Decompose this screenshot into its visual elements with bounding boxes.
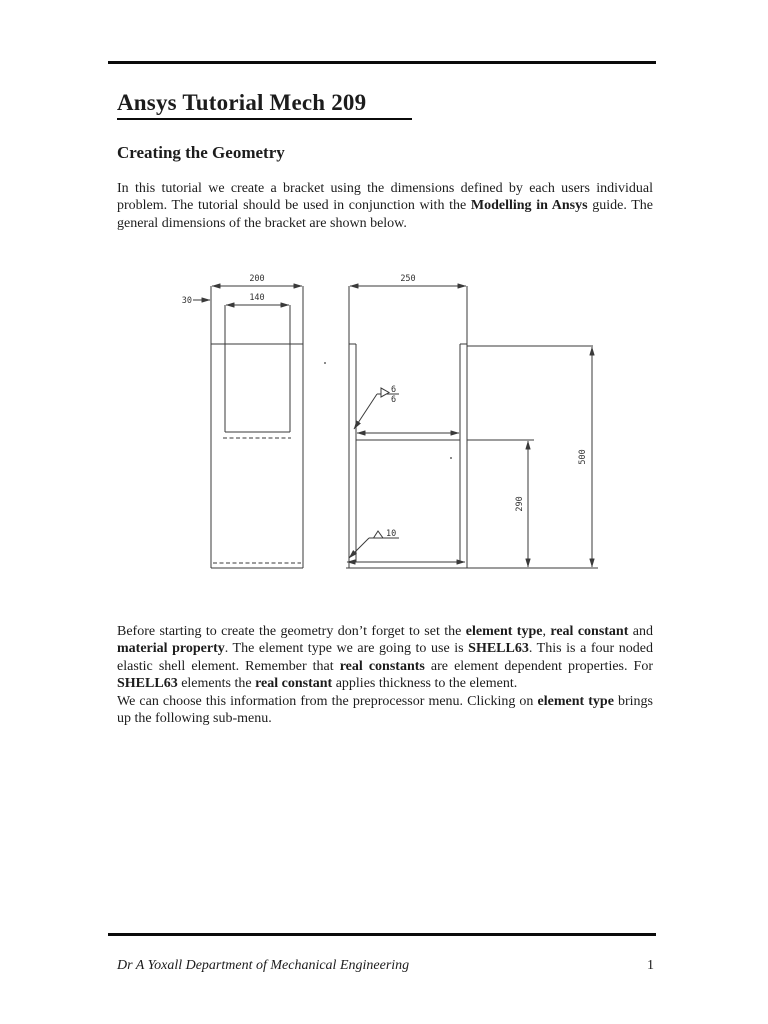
dim-label-overall-height: 500 (578, 449, 588, 464)
section-heading: Creating the Geometry (117, 143, 285, 163)
dim-label-shelf-height: 290 (515, 496, 525, 511)
body-paragraphs: Before starting to create the geometry d… (117, 623, 653, 727)
fillet-weld-symbol (381, 388, 389, 397)
front-view: 200 30 140 (182, 274, 303, 568)
dim-label-edge-offset: 30 (182, 296, 192, 306)
weld-size-top-lower: 6 (391, 395, 396, 405)
paragraph: In this tutorial we create a bracket usi… (117, 180, 653, 232)
side-view: 250 500 290 (324, 274, 598, 568)
weld-size-bottom: 10 (386, 529, 396, 539)
intro-paragraph: In this tutorial we create a bracket usi… (117, 180, 653, 232)
dim-label-front-width: 200 (249, 274, 264, 284)
speck (324, 362, 326, 364)
footer-page-number: 1 (647, 958, 654, 974)
fillet-weld-symbol (374, 531, 384, 538)
bracket-drawing: 200 30 140 250 (170, 262, 605, 592)
dim-label-inner-plate-width: 140 (249, 293, 264, 303)
paragraph: Before starting to create the geometry d… (117, 623, 653, 693)
document-page: Ansys Tutorial Mech 209 Creating the Geo… (0, 0, 768, 1024)
page-title: Ansys Tutorial Mech 209 (117, 90, 412, 120)
bottom-rule (108, 933, 656, 936)
weld-callout-top: 6 6 (354, 385, 399, 429)
dim-label-side-depth: 250 (400, 274, 415, 284)
top-rule (108, 61, 656, 64)
paragraph: We can choose this information from the … (117, 693, 653, 728)
weld-size-top-upper: 6 (391, 385, 396, 395)
page-footer: Dr A Yoxall Department of Mechanical Eng… (117, 958, 654, 974)
footer-author: Dr A Yoxall Department of Mechanical Eng… (117, 958, 409, 974)
speck (450, 457, 452, 459)
